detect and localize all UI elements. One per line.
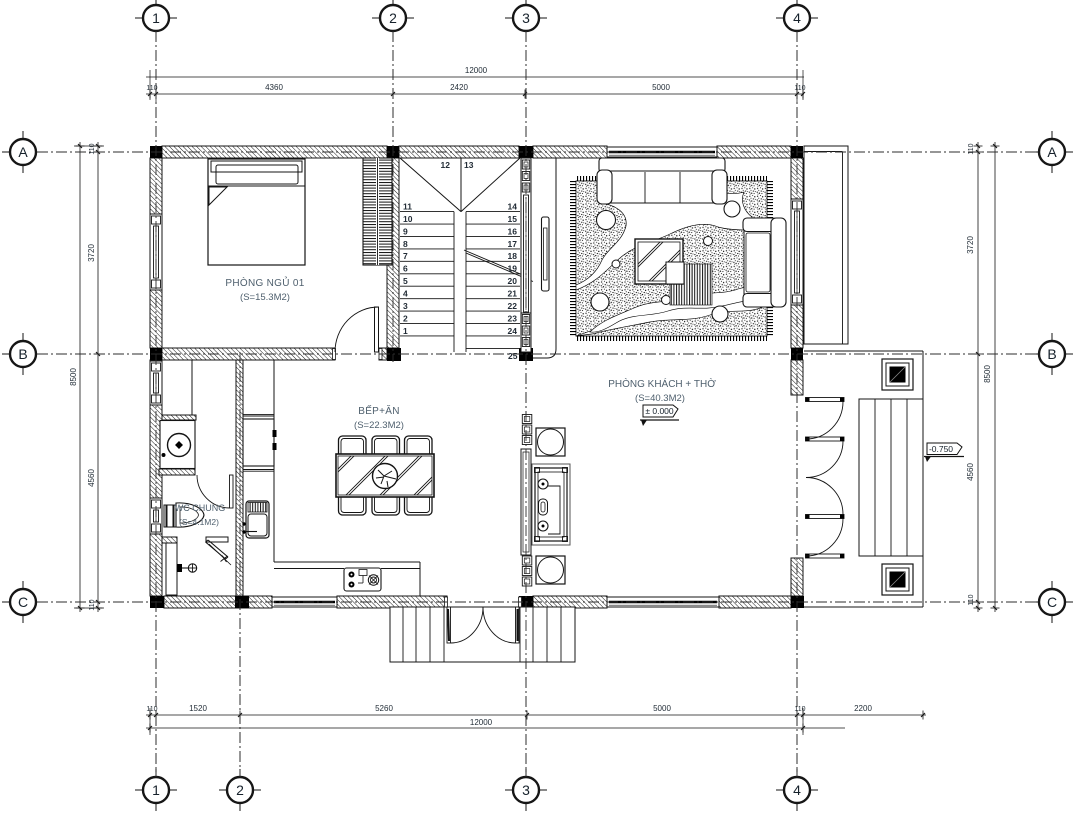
svg-text:12000: 12000	[465, 66, 488, 75]
svg-text:BẾP+ĂN: BẾP+ĂN	[358, 404, 400, 417]
svg-text:8500: 8500	[983, 365, 992, 383]
svg-text:(S=15.3M2): (S=15.3M2)	[240, 292, 290, 303]
svg-text:1: 1	[152, 782, 160, 798]
svg-text:(S=40.3M2): (S=40.3M2)	[635, 393, 685, 404]
svg-text:110: 110	[89, 143, 96, 154]
svg-text:13: 13	[464, 160, 474, 170]
svg-text:2: 2	[403, 313, 408, 323]
svg-text:10: 10	[403, 214, 413, 224]
svg-text:3720: 3720	[87, 244, 96, 262]
svg-text:(S=22.3M2): (S=22.3M2)	[354, 420, 404, 431]
svg-text:22: 22	[508, 301, 518, 311]
svg-text:11: 11	[403, 202, 412, 212]
svg-text:25: 25	[508, 351, 518, 361]
svg-text:7: 7	[403, 251, 408, 261]
svg-text:WC CHUNG: WC CHUNG	[175, 503, 226, 513]
svg-text:17: 17	[508, 239, 518, 249]
svg-text:4360: 4360	[265, 83, 283, 92]
svg-text:5260: 5260	[375, 704, 393, 713]
svg-text:2: 2	[236, 782, 244, 798]
svg-text:1: 1	[403, 326, 408, 336]
svg-text:PHÒNG KHÁCH + THỜ: PHÒNG KHÁCH + THỜ	[608, 377, 716, 390]
svg-text:4560: 4560	[87, 469, 96, 487]
svg-text:19: 19	[508, 264, 518, 274]
svg-text:21: 21	[508, 289, 518, 299]
svg-text:110: 110	[89, 599, 96, 610]
svg-text:18: 18	[508, 251, 518, 261]
svg-text:± 0.000: ± 0.000	[645, 406, 674, 416]
svg-text:8: 8	[403, 239, 408, 249]
svg-text:3: 3	[403, 301, 408, 311]
svg-text:A: A	[18, 144, 28, 160]
svg-text:4: 4	[793, 782, 801, 798]
svg-text:8500: 8500	[69, 368, 78, 386]
svg-text:2200: 2200	[854, 704, 872, 713]
svg-text:3720: 3720	[966, 236, 975, 254]
svg-text:3: 3	[522, 782, 530, 798]
svg-text:4: 4	[793, 10, 801, 26]
svg-text:6: 6	[403, 264, 408, 274]
svg-text:23: 23	[508, 313, 518, 323]
svg-text:9: 9	[403, 226, 408, 236]
svg-text:110: 110	[968, 594, 975, 605]
svg-text:3: 3	[522, 10, 530, 26]
svg-text:4: 4	[403, 289, 408, 299]
svg-text:20: 20	[508, 276, 518, 286]
svg-text:110: 110	[794, 706, 805, 713]
svg-text:15: 15	[508, 214, 518, 224]
svg-text:(S=4.1M2): (S=4.1M2)	[179, 517, 219, 527]
svg-text:110: 110	[794, 85, 805, 92]
svg-text:B: B	[1047, 346, 1056, 362]
svg-text:4560: 4560	[966, 463, 975, 481]
svg-text:C: C	[18, 594, 28, 610]
svg-text:PHÒNG NGỦ 01: PHÒNG NGỦ 01	[225, 276, 304, 289]
svg-text:B: B	[18, 346, 27, 362]
svg-text:24: 24	[508, 326, 518, 336]
svg-text:2420: 2420	[450, 83, 468, 92]
svg-text:5: 5	[403, 276, 408, 286]
svg-text:5000: 5000	[652, 83, 670, 92]
svg-text:110: 110	[968, 143, 975, 154]
svg-text:-0.750: -0.750	[929, 444, 953, 454]
svg-text:1: 1	[152, 10, 160, 26]
svg-text:12: 12	[441, 160, 451, 170]
svg-text:A: A	[1047, 144, 1057, 160]
svg-text:16: 16	[508, 226, 518, 236]
svg-text:14: 14	[508, 202, 518, 212]
svg-text:12000: 12000	[470, 718, 493, 727]
svg-text:2: 2	[389, 10, 397, 26]
svg-text:C: C	[1047, 594, 1057, 610]
svg-text:5000: 5000	[653, 704, 671, 713]
svg-text:1520: 1520	[189, 704, 207, 713]
